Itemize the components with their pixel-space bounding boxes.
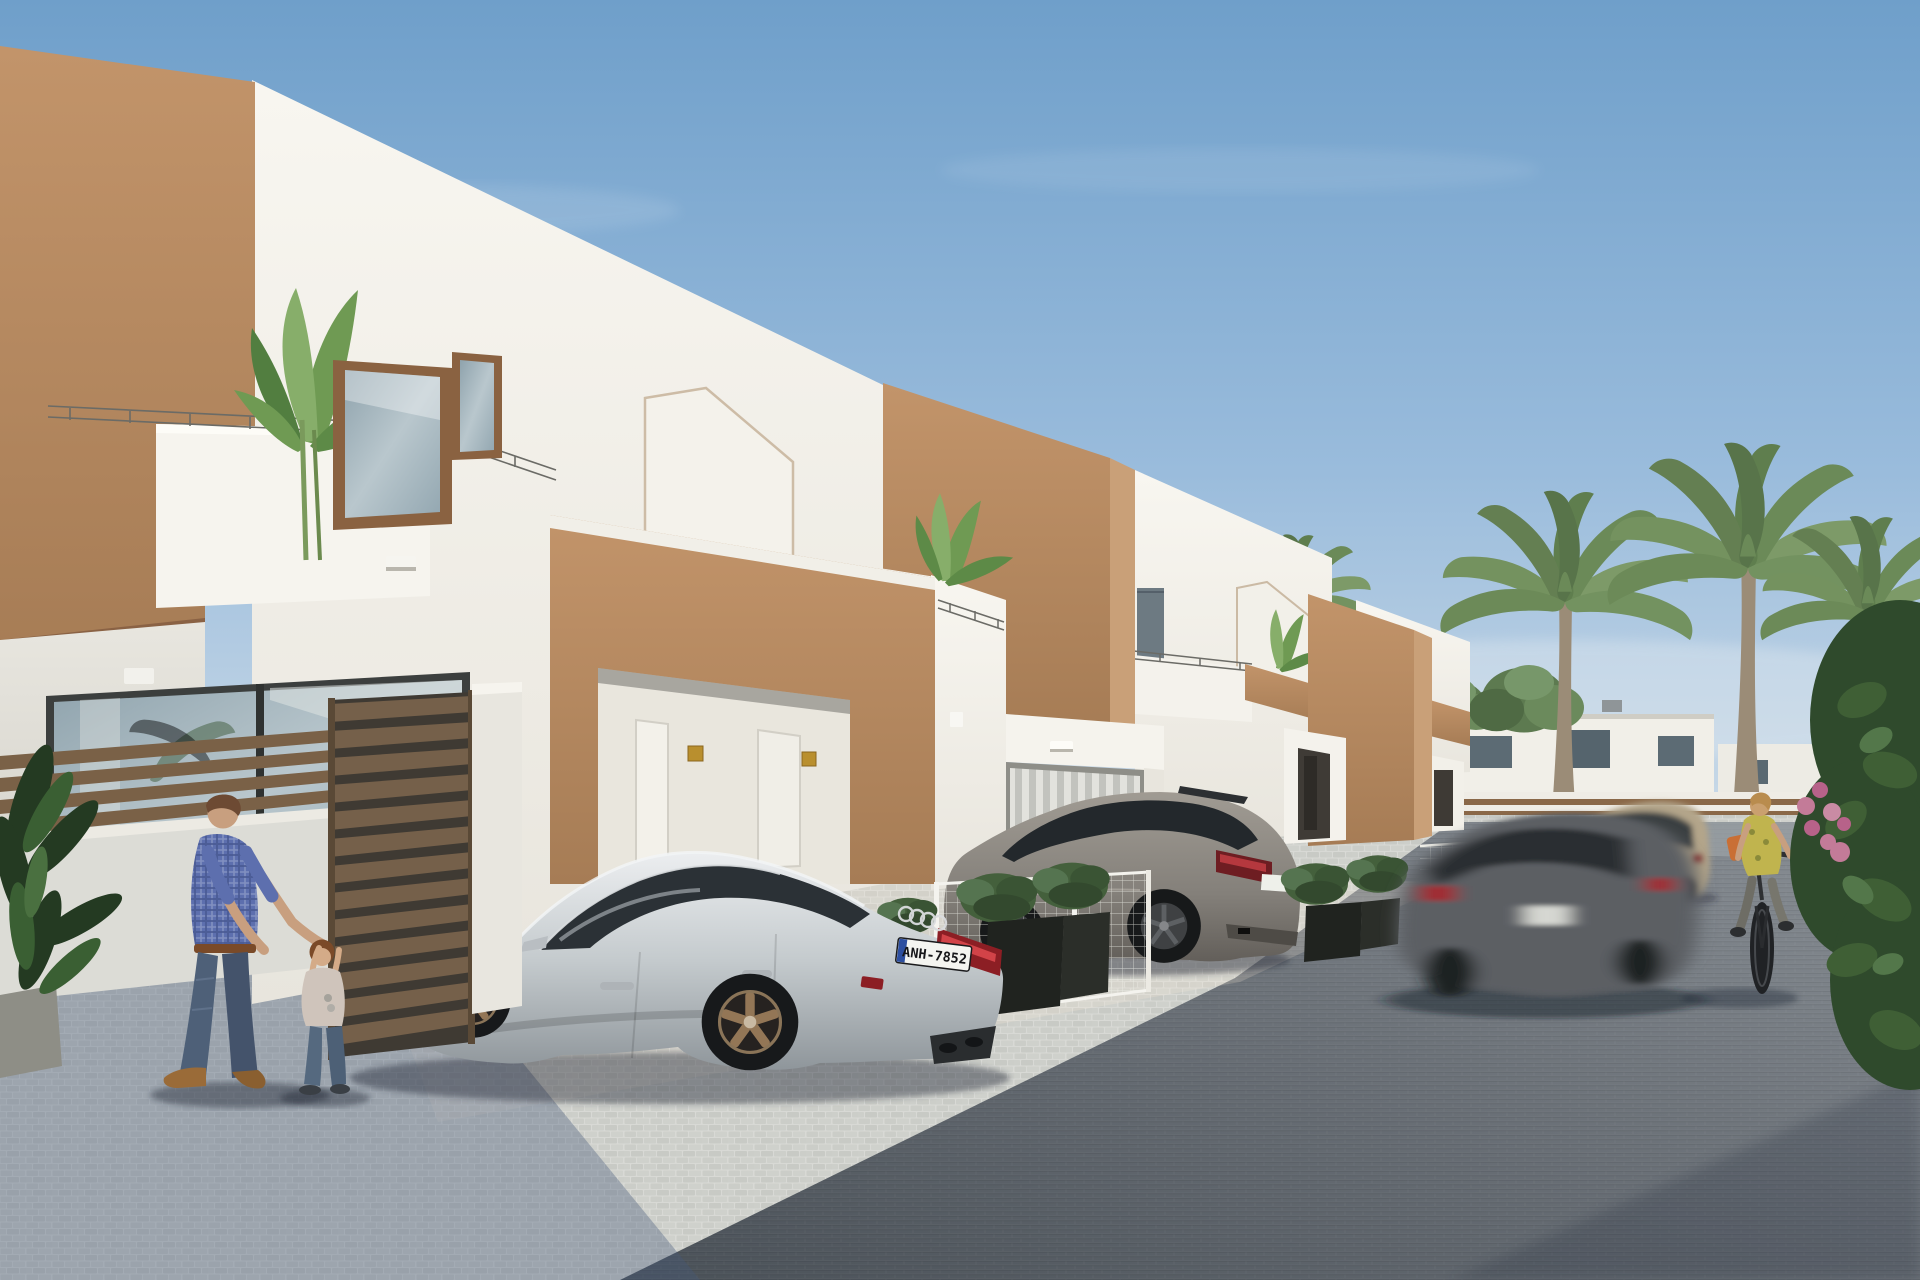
render-scene: ANH-7852 (0, 0, 1920, 1280)
window-brown-frame (452, 352, 502, 460)
gate-pillar (472, 686, 522, 1014)
cloud (940, 148, 1540, 192)
taillight (1692, 854, 1703, 863)
unit-door (636, 720, 668, 864)
black-planter (1060, 912, 1110, 1000)
belt (194, 944, 256, 953)
doorbell-plaque (950, 712, 963, 727)
cyclist-top (1741, 814, 1782, 876)
slat-gate (328, 690, 475, 1060)
door-number-plaque (688, 746, 703, 761)
wall-lamp (124, 668, 154, 684)
window-brown-frame (333, 360, 452, 530)
brown-volume-side (1110, 458, 1135, 734)
toddler-shoe (299, 1085, 321, 1095)
plant-pot (0, 985, 62, 1078)
scene-canvas: ANH-7852 (0, 0, 1920, 1280)
door-recess (1434, 770, 1453, 826)
unit-door (758, 730, 800, 868)
door-number-plaque (802, 752, 816, 766)
rear-wheel (702, 974, 799, 1071)
entrance-door (1304, 756, 1317, 830)
toddler-shirt (302, 968, 345, 1027)
brown-volume-side (1414, 630, 1432, 840)
entrance-portal (550, 515, 935, 884)
black-planter (1360, 898, 1400, 950)
window (1470, 736, 1512, 768)
toddler-shoe (330, 1084, 350, 1094)
door-handle (600, 982, 634, 990)
window (1658, 736, 1694, 766)
roof-unit (1602, 700, 1622, 712)
black-planter (1304, 902, 1362, 962)
